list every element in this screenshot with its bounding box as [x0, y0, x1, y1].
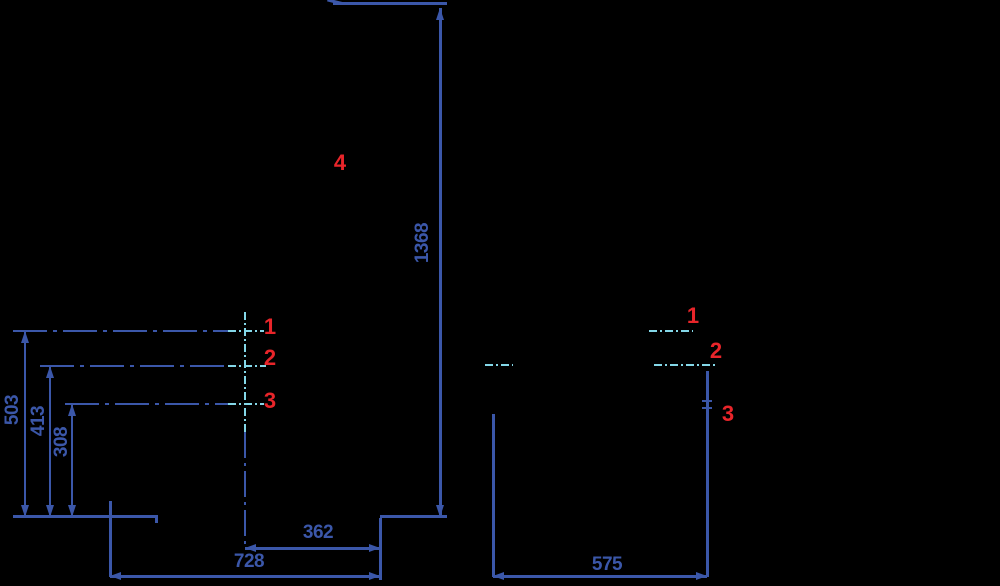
total-depth-arrow-left [110, 572, 121, 580]
height-dimension-line [439, 8, 442, 517]
floor-line-left [13, 515, 158, 518]
front-position3-tick-b [702, 407, 712, 409]
axis-depth-dimension-line [245, 547, 380, 550]
pos1-height-label: 503 [4, 388, 22, 432]
hinge-axis-centerline-blue [244, 432, 246, 548]
rear-extension-line [109, 501, 112, 577]
width-dim-arrow-left [493, 572, 504, 580]
mid-axis-segment [485, 364, 513, 366]
side-marker-3: 3 [261, 389, 279, 413]
pos2-height-label: 413 [30, 399, 48, 443]
position3-cross-icon [228, 403, 264, 405]
pos3-dim-arrow-top [68, 404, 76, 416]
floor-line-right [380, 515, 447, 518]
total-depth-arrow-right [369, 572, 380, 580]
position1-cross-icon [228, 330, 264, 332]
position3-centerline [65, 403, 228, 405]
pos2-dim-arrow-bottom [46, 505, 54, 517]
total-depth-dimension-line [110, 575, 380, 578]
pos1-dim-arrow-bottom [21, 505, 29, 517]
front-marker-1: 1 [684, 304, 702, 328]
axis-depth-arrow-right [369, 544, 380, 552]
pos3-height-label: 308 [53, 420, 71, 464]
front-position2-axis [654, 364, 715, 366]
front-left-extension-line [492, 414, 495, 577]
pos3-dimension-line [71, 404, 73, 517]
pos2-dim-arrow-top [46, 366, 54, 378]
height-total-label: 1368 [414, 213, 434, 273]
position1-centerline [13, 330, 228, 332]
front-marker-2: 2 [707, 339, 725, 363]
front-position3-tick-a [702, 400, 712, 402]
front-marker-3: 3 [719, 402, 737, 426]
width-total-label: 575 [583, 556, 631, 574]
total-depth-label: 728 [226, 553, 272, 571]
side-marker-1: 1 [261, 315, 279, 339]
axis-depth-label: 362 [295, 524, 341, 542]
width-dim-arrow-right [696, 572, 707, 580]
side-marker-2: 2 [261, 346, 279, 370]
position2-centerline [40, 365, 228, 367]
height-dim-arrow-top [436, 8, 444, 20]
top-edge-line [333, 2, 447, 5]
pos1-dim-arrow-top [21, 331, 29, 343]
width-dimension-line [493, 575, 707, 578]
side-marker-4: 4 [331, 151, 349, 175]
floor-line-tick [155, 518, 158, 523]
front-position1-axis [649, 330, 693, 332]
installation-drawing: 1368 503 413 308 362 728 1 2 3 4 [0, 0, 1000, 586]
pos3-dim-arrow-bottom [68, 505, 76, 517]
pos1-dimension-line [24, 331, 26, 517]
